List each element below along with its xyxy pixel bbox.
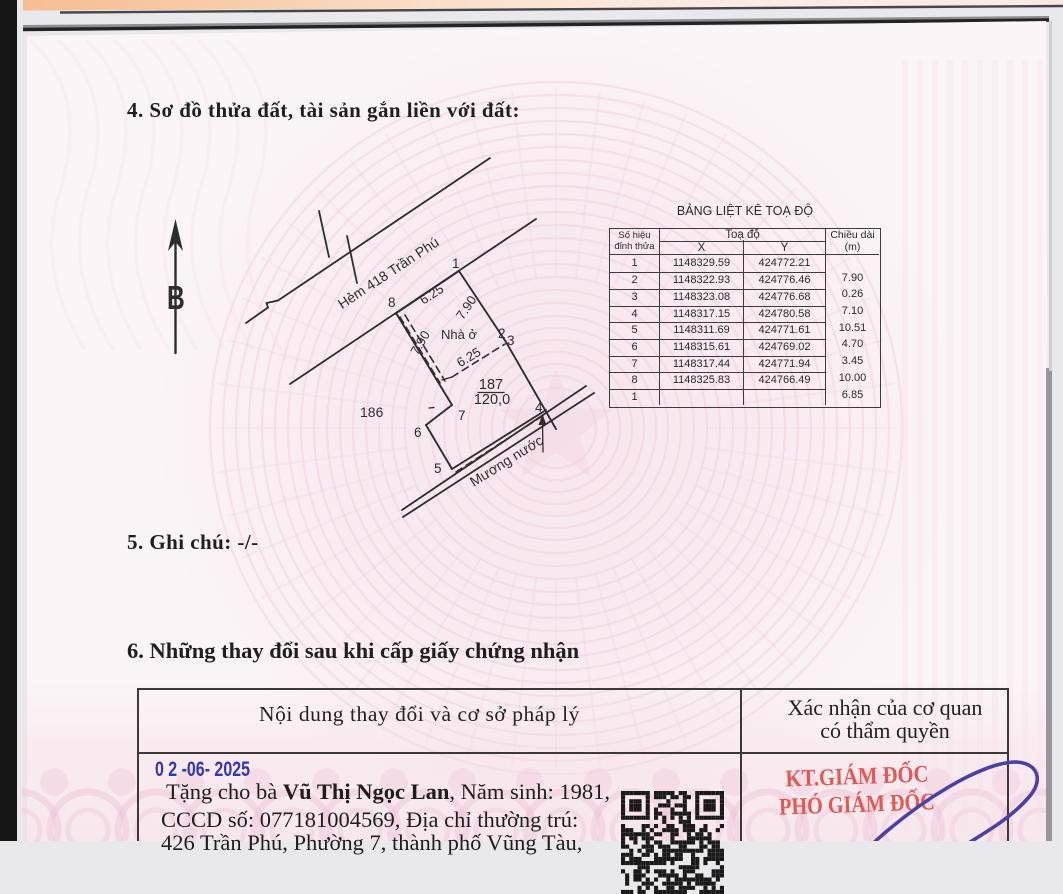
svg-text:3: 3 [507,333,515,348]
svg-text:8: 8 [388,295,396,310]
svg-text:5: 5 [434,461,442,476]
svg-text:6.25: 6.25 [417,281,446,307]
svg-text:7: 7 [458,408,466,423]
svg-text:2: 2 [498,326,506,341]
svg-text:1: 1 [452,256,460,271]
svg-text:B: B [167,279,185,317]
svg-text:6.25: 6.25 [454,344,483,370]
svg-text:6: 6 [414,425,422,440]
svg-text:186: 186 [360,404,384,420]
svg-text:187: 187 [479,377,503,393]
svg-text:7.90: 7.90 [407,328,433,357]
svg-text:Nhà ở: Nhà ở [441,327,477,342]
svg-text:120,0: 120,0 [474,392,510,408]
svg-text:4: 4 [535,400,543,415]
